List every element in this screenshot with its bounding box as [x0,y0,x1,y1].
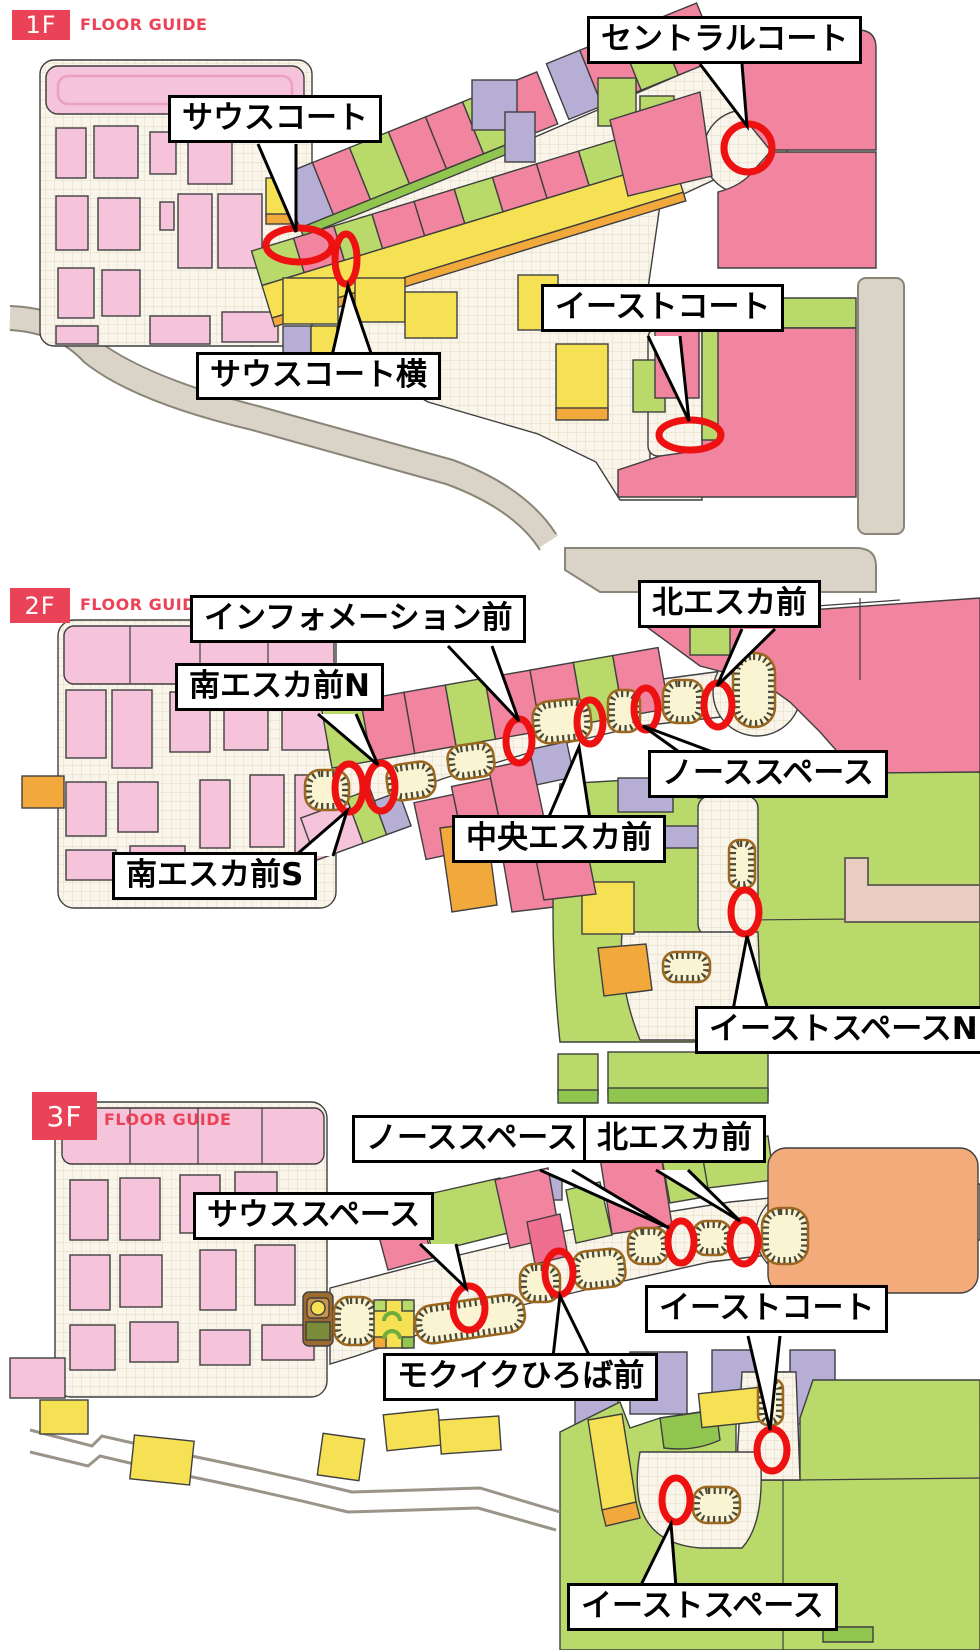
callout-1f-central-court: セントラルコート [587,16,862,64]
callout-3f-north-space: ノーススペース [352,1115,592,1163]
callout-2f-south-escalator-front-s: 南エスカ前S [112,852,317,900]
callout-3f-east-court: イーストコート [645,1285,888,1333]
callout-3f-east-space: イーストスペース [567,1583,838,1631]
callout-2f-north-space: ノーススペース [648,750,888,798]
callout-3f-mokuiku-hiroba-front: モクイクひろば前 [383,1353,658,1401]
callout-2f-east-space-n: イーストスペースN [695,1006,980,1054]
callout-2f-information-front: インフォメーション前 [190,595,526,643]
callout-3f-north-escalator-front: 北エスカ前 [583,1115,766,1163]
callout-2f-north-escalator-front: 北エスカ前 [638,580,821,628]
floor-guide-page: 1F FLOOR GUIDE 2F FLOOR GUIDE 3F FLOOR G… [0,0,980,1650]
callout-1f-south-court: サウスコート [168,95,382,143]
callout-2f-central-escalator-front: 中央エスカ前 [452,815,666,863]
callout-3f-south-space: サウススペース [193,1192,434,1240]
callout-1f-south-court-side: サウスコート横 [196,352,441,400]
callout-2f-south-escalator-front-n: 南エスカ前N [175,663,384,711]
callout-1f-east-court: イーストコート [541,284,784,332]
